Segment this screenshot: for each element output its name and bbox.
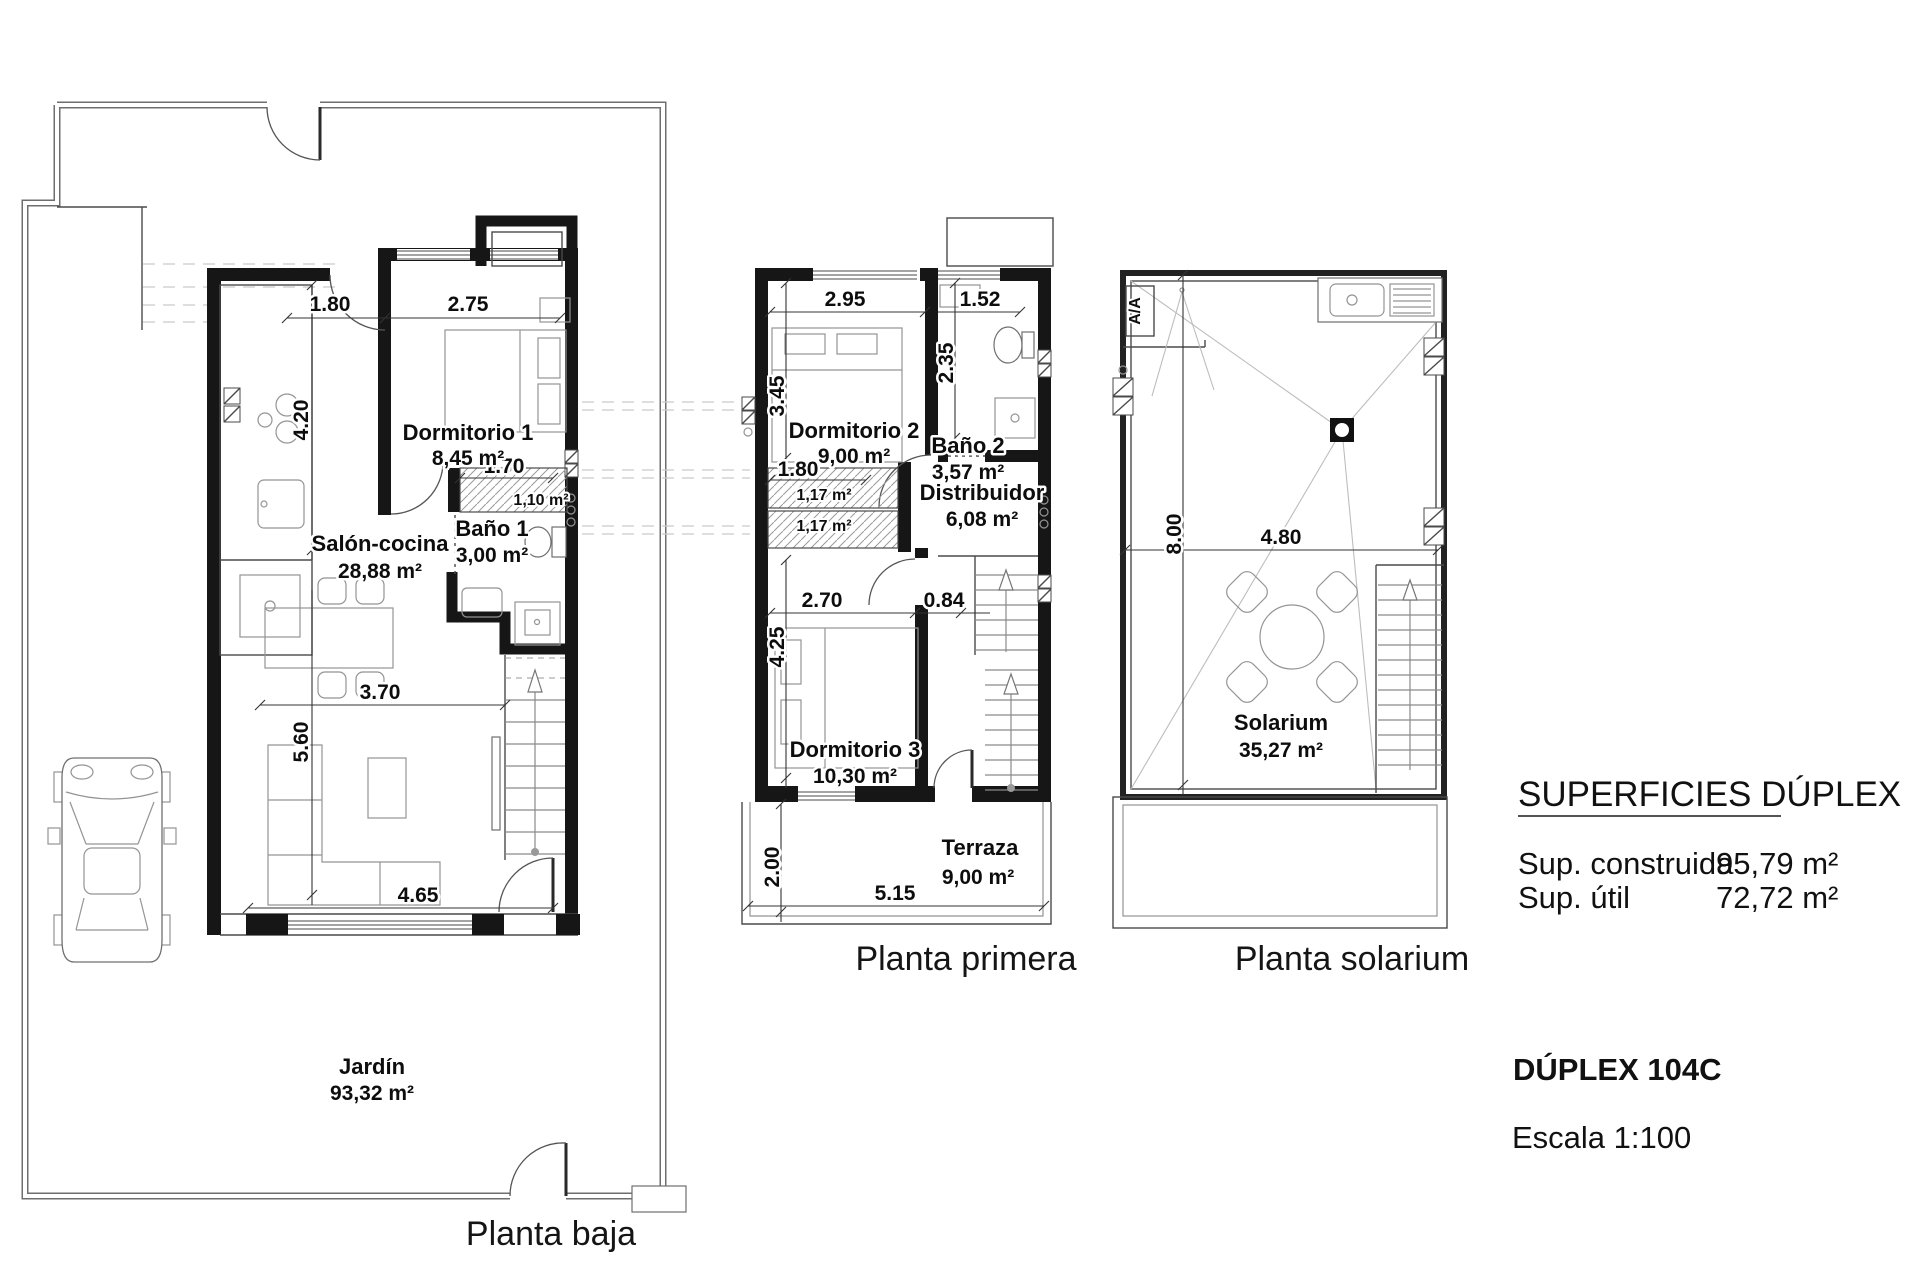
sofa <box>268 745 440 905</box>
dim-text: 2.35 <box>935 342 958 383</box>
dim-text: 1,10 m² <box>513 492 568 509</box>
plot-boundary <box>25 105 686 1212</box>
lower-floor-outline <box>1113 797 1447 928</box>
room-name: Dormitorio 2 <box>789 418 920 443</box>
sink-unit <box>1318 278 1442 322</box>
kitchen-counter <box>220 285 312 655</box>
shower <box>995 398 1035 438</box>
mirror <box>164 828 176 844</box>
room-name: Dormitorio 1 <box>403 420 534 445</box>
terraza-door-arc <box>934 750 972 788</box>
labels-solarium: Solarium 35,27 m² <box>1234 710 1328 762</box>
plan-planta-primera: 2.95 1.52 3.45 2.35 1.80 1,17 m² 1,17 m²… <box>742 218 1077 978</box>
room-area: 35,27 m² <box>1239 739 1323 762</box>
dim-text: 1.80 <box>310 293 351 316</box>
room-area: 3,00 m² <box>456 544 528 567</box>
room-area: 9,00 m² <box>818 445 890 468</box>
entry-step <box>632 1186 686 1212</box>
dim-text: 1.80 <box>778 458 819 481</box>
round-table <box>1260 605 1324 669</box>
built-area-label: Sup. construida <box>1518 846 1734 881</box>
dim-text: 4.20 <box>290 400 313 441</box>
room-name: Baño 1 <box>455 516 528 541</box>
solarium-table-set <box>1223 568 1361 706</box>
built-area-value: 95,79 m² <box>1716 846 1838 881</box>
garden-gate-top <box>267 107 320 160</box>
stairs-primera-icon <box>975 570 1038 792</box>
stairs-up-arrow <box>528 670 542 692</box>
scale-label: Escala 1:100 <box>1512 1120 1691 1155</box>
dim-text: 1,17 m² <box>796 487 851 504</box>
dimensions-primera: 2.95 1.52 3.45 2.35 1.80 1,17 m² 1,17 m²… <box>743 278 1049 922</box>
toilet-tank <box>1022 332 1034 358</box>
stairs-up-arrow <box>1403 580 1417 600</box>
dim-text: 4.25 <box>766 626 789 667</box>
surfaces-heading: SUPERFICIES DÚPLEX <box>1518 775 1901 814</box>
toilet-tank <box>552 527 566 557</box>
chair <box>1223 658 1271 706</box>
hob-burner <box>258 413 272 427</box>
dim-text: 5.15 <box>875 882 916 905</box>
car-icon <box>48 758 176 962</box>
room-area: 10,30 m² <box>813 765 897 788</box>
room-area: 9,00 m² <box>942 866 1014 889</box>
plan-planta-solarium: A/A <box>1113 270 1469 978</box>
dim-text: 4.80 <box>1261 526 1302 549</box>
dim-text: 5.60 <box>290 722 313 763</box>
dim-text: 1.52 <box>960 288 1001 311</box>
plan-title-primera: Planta primera <box>855 940 1076 978</box>
shower <box>515 602 560 645</box>
usable-area-value: 72,72 m² <box>1716 880 1838 915</box>
dim-text: 4.65 <box>398 884 439 907</box>
plan-title-baja: Planta baja <box>466 1215 636 1253</box>
mirror <box>48 828 60 844</box>
chair <box>318 672 346 698</box>
dim-text: 1,17 m² <box>796 518 851 535</box>
stairs-up-arrow <box>999 570 1013 590</box>
usable-area-label: Sup. útil <box>1518 880 1630 915</box>
tv-unit <box>492 737 500 830</box>
room-name: Dormitorio 3 <box>790 737 921 762</box>
chair <box>1313 568 1361 616</box>
stairs-up-arrow <box>1004 674 1018 694</box>
chair <box>1313 658 1361 706</box>
shaft <box>947 218 1053 266</box>
room-name: Salón-cocina <box>312 531 450 556</box>
room-name: Terraza <box>942 835 1019 860</box>
dining-table <box>265 608 393 668</box>
dim-text: 2.70 <box>802 589 843 612</box>
ac-label: A/A <box>1127 297 1144 325</box>
room-area: 6,08 m² <box>946 508 1018 531</box>
stairs-baja-icon <box>505 655 565 860</box>
room-area: 8,45 m² <box>432 447 504 470</box>
dim-text: 0.84 <box>924 589 965 612</box>
duplex-model: DÚPLEX 104C <box>1513 1051 1721 1087</box>
garden-gate-bottom <box>510 1143 566 1196</box>
plan-title-solarium: Planta solarium <box>1235 940 1469 978</box>
room-name: Distribuidor <box>920 480 1045 505</box>
room-area: 93,32 m² <box>330 1082 414 1105</box>
room-area: 28,88 m² <box>338 560 422 583</box>
room-name: Jardín <box>339 1054 405 1079</box>
kitchen-sink <box>258 480 304 528</box>
entrance-door-arc <box>499 858 553 912</box>
plan-planta-baja: 1.80 2.75 4.20 1.70 1,10 m² 3.70 5.60 4.… <box>25 105 750 1253</box>
floorplan-drawing: 1.80 2.75 4.20 1.70 1,10 m² 3.70 5.60 4.… <box>0 0 1920 1280</box>
floorplan-sheet: 1.80 2.75 4.20 1.70 1,10 m² 3.70 5.60 4.… <box>0 0 1920 1280</box>
toilet-icon <box>525 527 551 557</box>
stairs-solarium-icon <box>1376 565 1444 793</box>
ac-unit: A/A <box>1123 286 1214 396</box>
dim-text: 3.70 <box>360 681 401 704</box>
dim-text: 8.00 <box>1163 514 1186 555</box>
coffee-table <box>368 758 406 818</box>
room-name: Baño 2 <box>931 433 1004 458</box>
oven <box>240 575 300 637</box>
info-block: SUPERFICIES DÚPLEX Sup. construida 95,79… <box>1512 775 1901 1155</box>
dim-text: 3.45 <box>766 375 789 416</box>
toilet-icon <box>994 327 1022 363</box>
room-name: Solarium <box>1234 710 1328 735</box>
dorm3-door-arc <box>869 559 915 605</box>
dim-text: 2.95 <box>825 288 866 311</box>
dim-text: 2.75 <box>448 293 489 316</box>
dim-text: 2.00 <box>761 847 784 888</box>
